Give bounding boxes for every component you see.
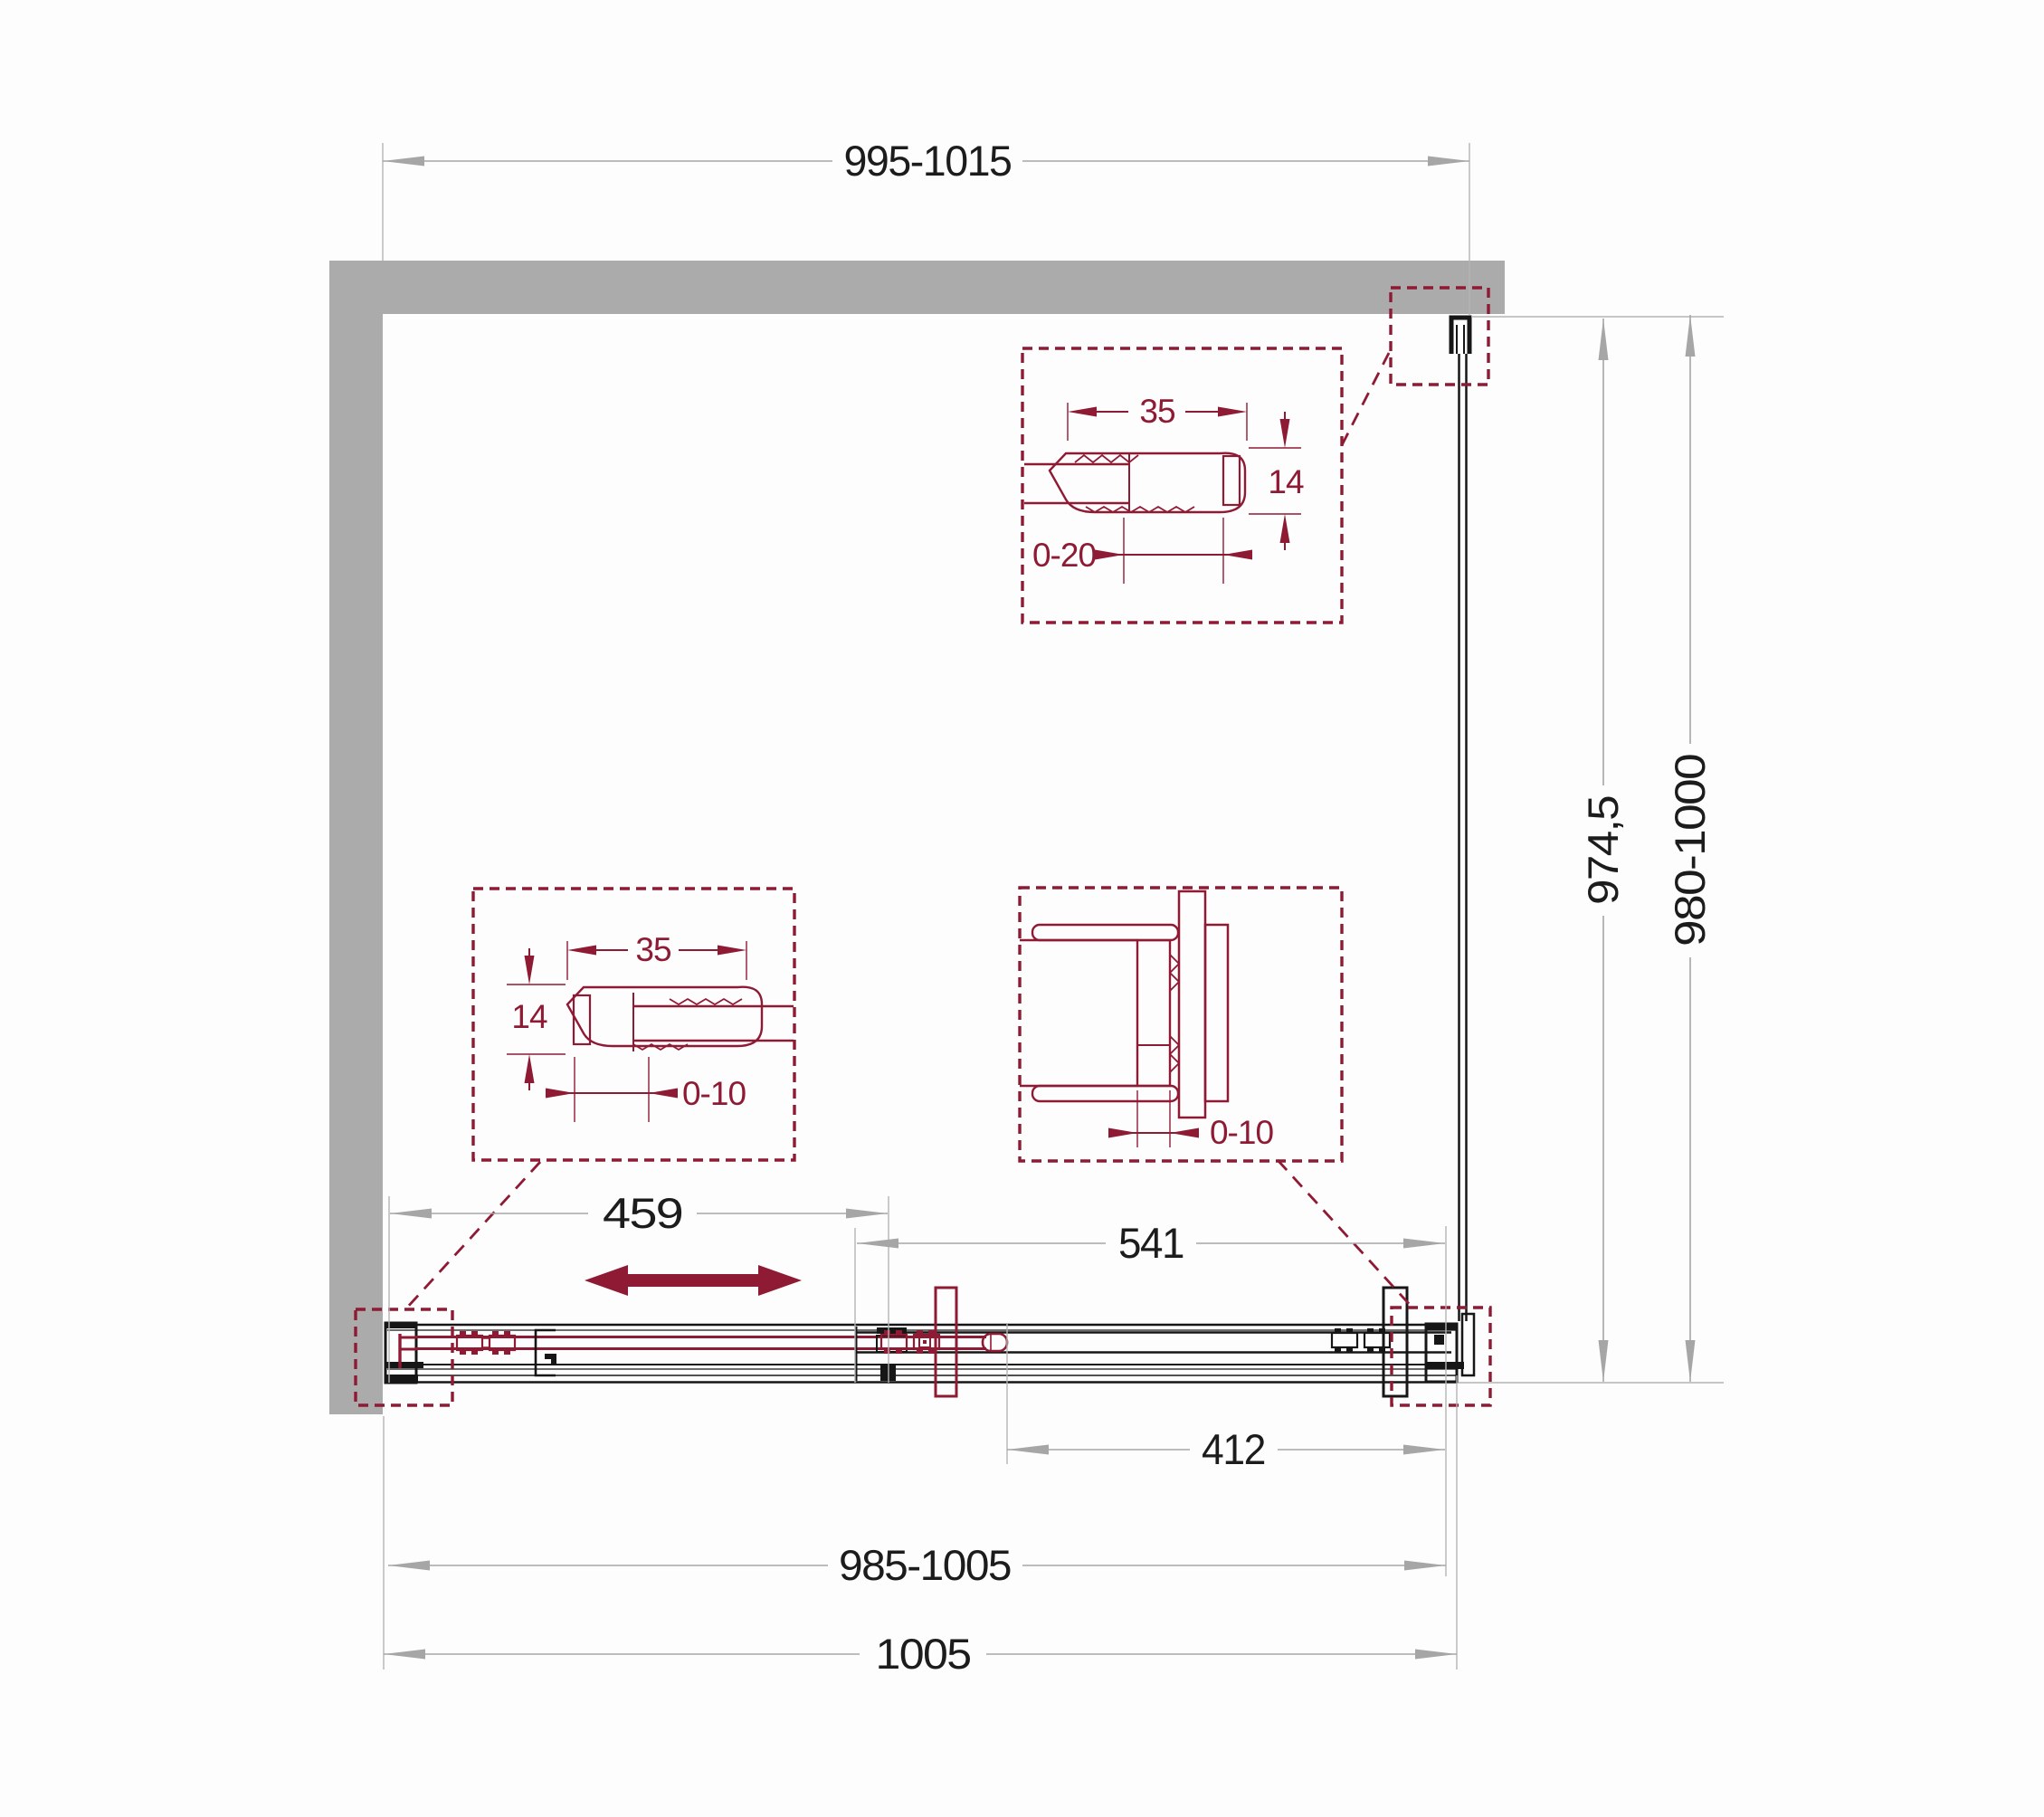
- detail-a-width-label: 35: [1139, 393, 1175, 430]
- detail-box-panel-connector: [1020, 888, 1342, 1161]
- dim-width-total: 1005: [384, 1630, 1457, 1678]
- dim-height-outer-label: 980-1000: [1666, 755, 1714, 947]
- leader-top-detail: [1342, 353, 1389, 445]
- detail-c-range-label: 0-10: [1210, 1114, 1273, 1151]
- detail-a-height-label: 14: [1268, 463, 1304, 500]
- detail-b-width-label: 35: [635, 931, 671, 968]
- dim-door-zone-label: 459: [603, 1189, 682, 1237]
- slide-direction-arrow: [585, 1265, 802, 1296]
- detail-b-height-label: 14: [511, 998, 547, 1035]
- roller-clamp-left: [457, 1331, 515, 1355]
- detail-wall-profile-left: 35 14 0-10: [507, 931, 794, 1122]
- door-knob: [983, 1334, 1007, 1351]
- roller-clamp-center: [881, 1330, 939, 1354]
- technical-drawing-canvas: 35 14 0-20 35 14: [0, 0, 2044, 1817]
- dim-height-inner: 974,5: [1579, 319, 1627, 1382]
- side-panel: [1451, 318, 1474, 1375]
- side-panel-top-profile: [1451, 318, 1469, 354]
- side-panel-top-profile-inner: [1457, 325, 1464, 354]
- fixed-panel-bracket: [1383, 1288, 1407, 1396]
- dim-top-width: 995-1015: [383, 137, 1469, 185]
- plan-view-drawing: 35 14 0-20 35 14: [0, 0, 2044, 1817]
- dim-width-range-label: 985-1005: [839, 1541, 1011, 1589]
- dim-top-width-label: 995-1015: [844, 137, 1012, 185]
- dim-panel-width-label: 412: [1202, 1425, 1265, 1473]
- dim-width-range: 985-1005: [388, 1541, 1446, 1589]
- wall: [329, 261, 1505, 1414]
- leader-right-detail: [1278, 1160, 1412, 1307]
- side-panel-glass: [1459, 354, 1467, 1321]
- detail-b-range-label: 0-10: [682, 1075, 746, 1112]
- dim-fixed-zone-label: 541: [1118, 1219, 1184, 1267]
- dim-height-outer: 980-1000: [1666, 315, 1714, 1382]
- extension-lines: [383, 143, 1724, 1670]
- dim-panel-width: 412: [1007, 1425, 1445, 1473]
- track-left-wall-profile: [385, 1322, 423, 1383]
- dim-door-zone: 459: [390, 1189, 888, 1237]
- detail-wall-profile-top: 35 14 0-20: [1024, 393, 1304, 584]
- detail-panel-connector: 0-10: [1020, 891, 1273, 1151]
- leader-left-detail: [406, 1162, 540, 1308]
- dim-width-total-label: 1005: [876, 1630, 971, 1678]
- detail-a-range-label: 0-20: [1032, 537, 1096, 574]
- dim-fixed-zone: 541: [857, 1219, 1445, 1267]
- dim-height-inner-label: 974,5: [1579, 796, 1627, 905]
